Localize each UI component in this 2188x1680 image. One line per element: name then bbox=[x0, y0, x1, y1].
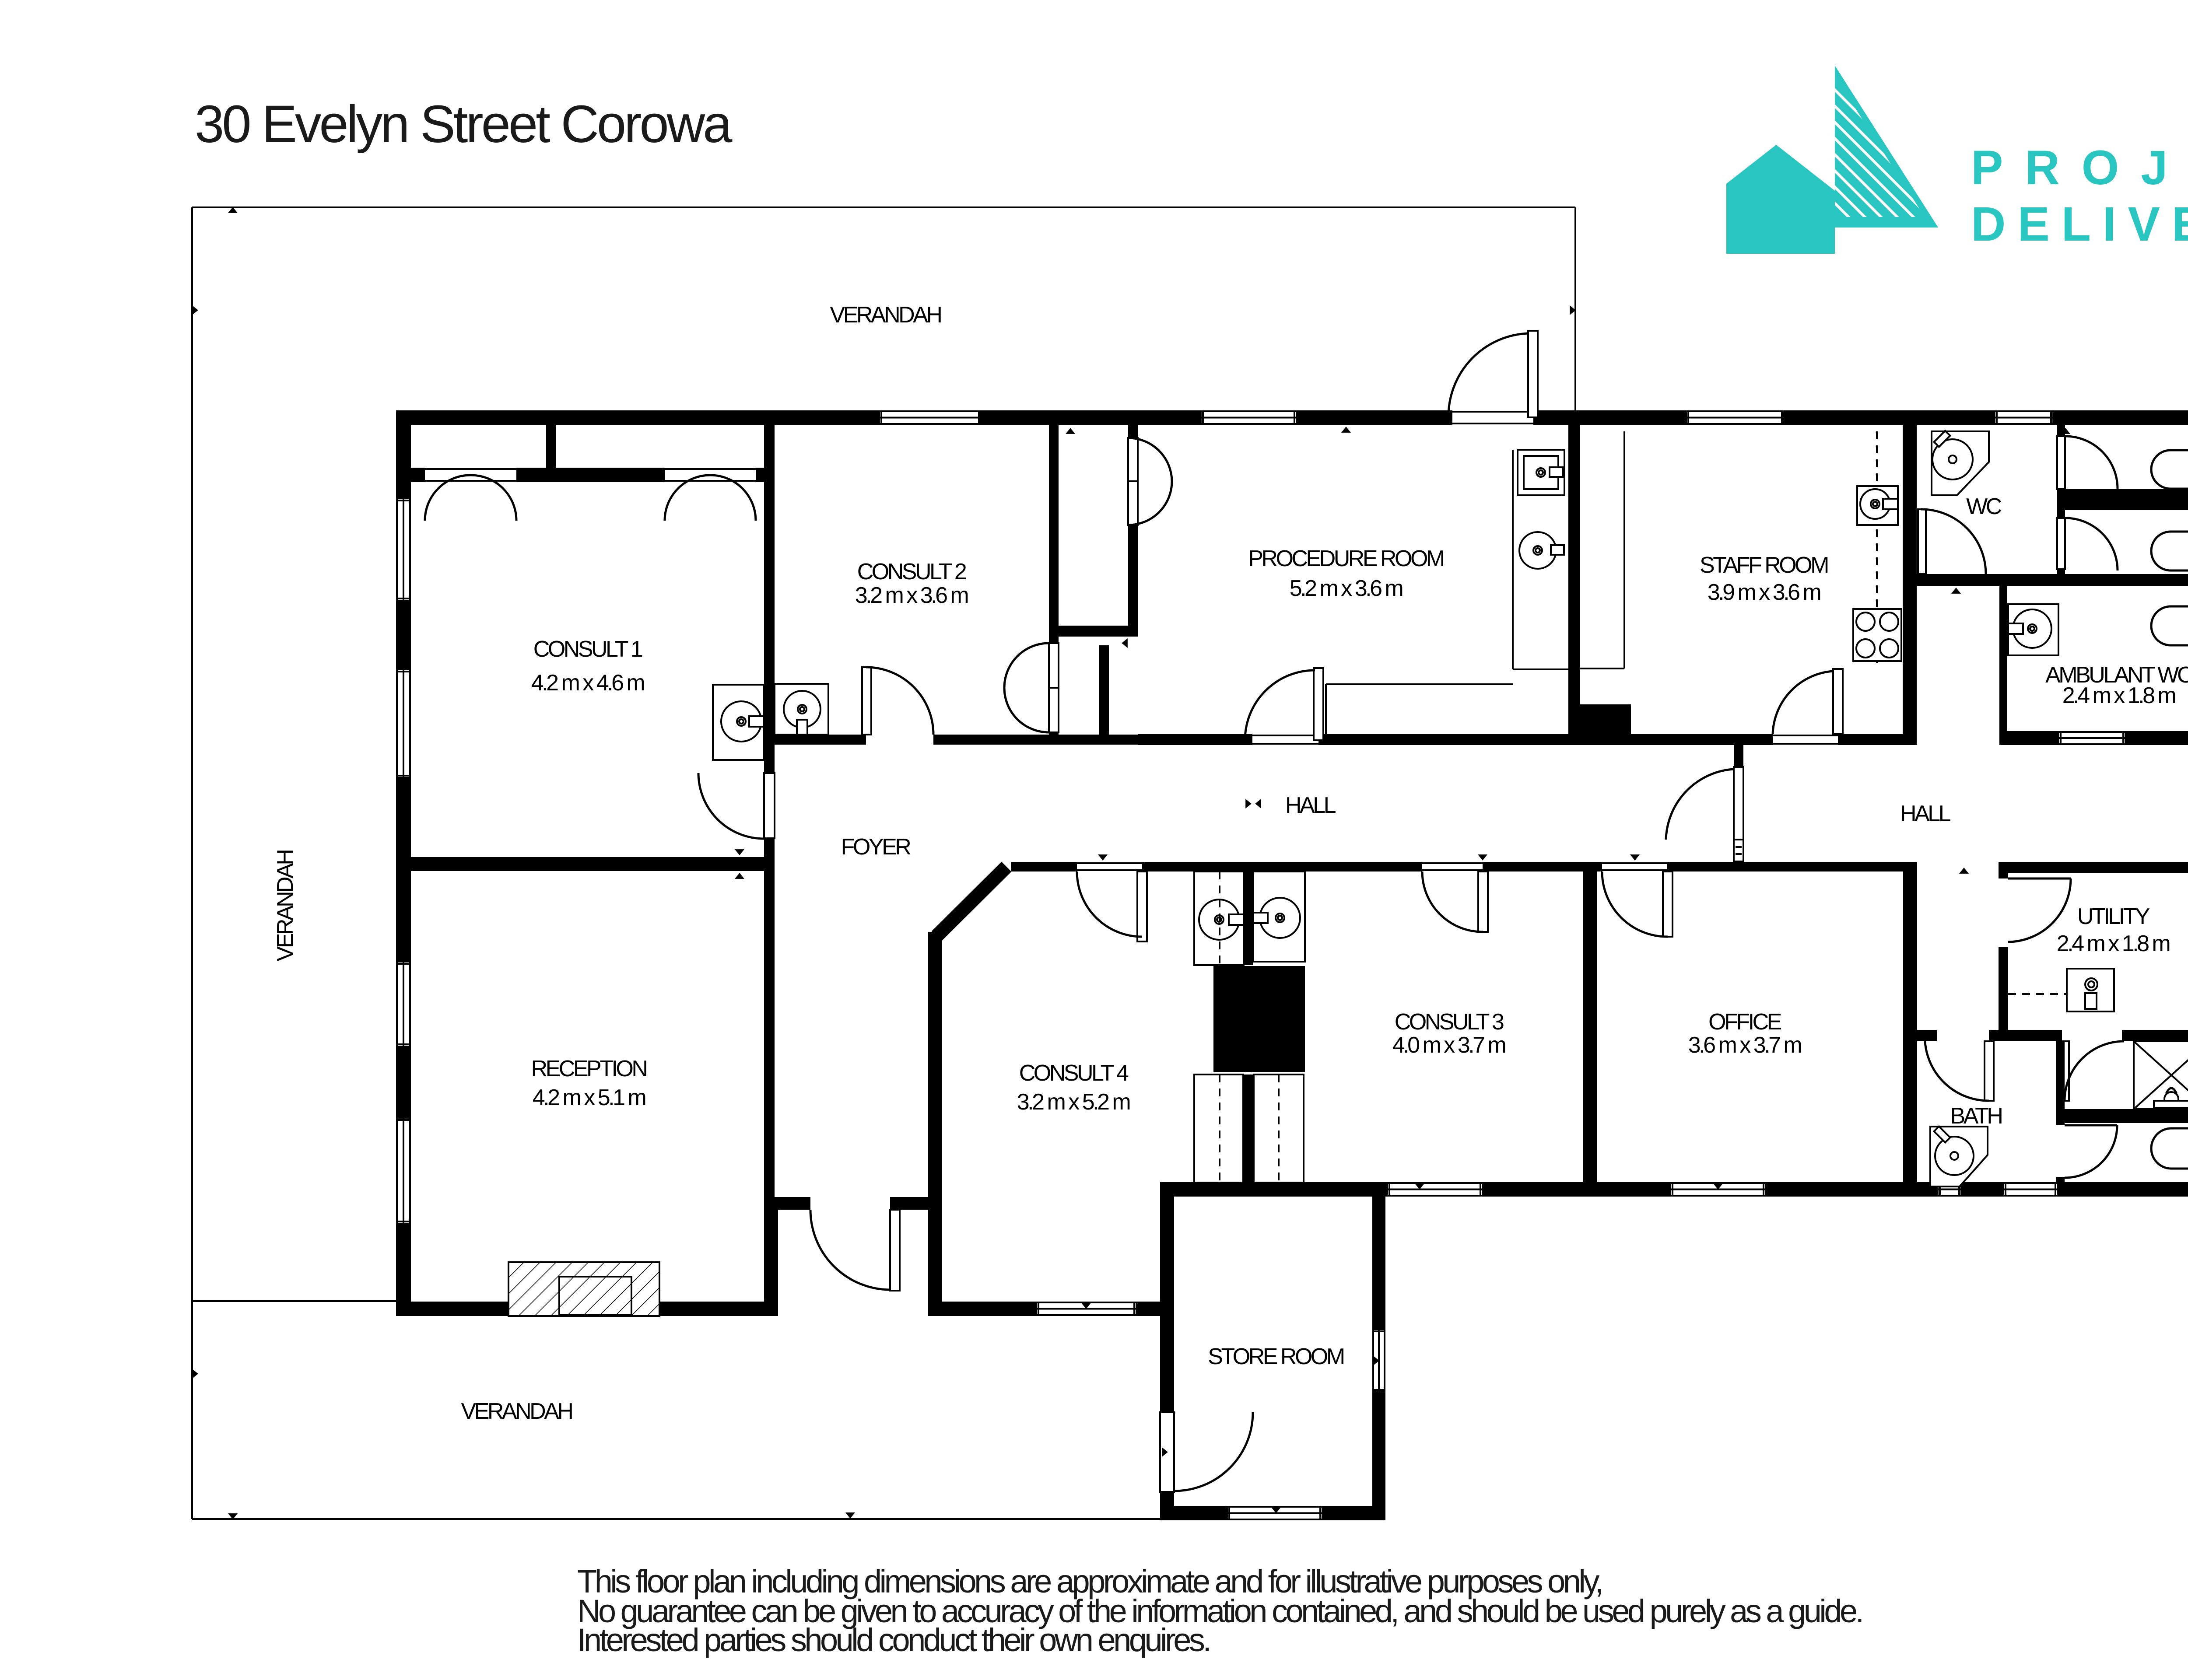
svg-text:PROCEDURE ROOM: PROCEDURE ROOM bbox=[1248, 546, 1444, 571]
svg-text:DELIVERY.co: DELIVERY.co bbox=[1971, 197, 2188, 251]
svg-text:CONSULT 4: CONSULT 4 bbox=[1019, 1060, 1129, 1086]
svg-text:PROJECT: PROJECT bbox=[1971, 141, 2188, 195]
svg-text:3.2 m x 3.6 m: 3.2 m x 3.6 m bbox=[855, 583, 968, 608]
svg-text:FOYER: FOYER bbox=[841, 834, 911, 860]
svg-text:2.4 m x 1.8 m: 2.4 m x 1.8 m bbox=[2057, 931, 2170, 956]
svg-text:CONSULT 3: CONSULT 3 bbox=[1395, 1009, 1504, 1035]
svg-text:VERANDAH: VERANDAH bbox=[830, 302, 941, 328]
svg-text:3.2 m x 5.2 m: 3.2 m x 5.2 m bbox=[1017, 1089, 1130, 1115]
svg-text:CONSULT 1: CONSULT 1 bbox=[533, 637, 642, 662]
svg-text:OFFICE: OFFICE bbox=[1708, 1009, 1781, 1035]
svg-text:RECEPTION: RECEPTION bbox=[531, 1056, 647, 1081]
svg-text:BATH: BATH bbox=[1950, 1103, 2002, 1129]
svg-text:2.4 m x 1.8 m: 2.4 m x 1.8 m bbox=[2062, 683, 2175, 708]
svg-text:UTILITY: UTILITY bbox=[2077, 904, 2150, 929]
svg-text:3.6 m x 3.7 m: 3.6 m x 3.7 m bbox=[1688, 1032, 1801, 1058]
svg-text:3.9 m x 3.6 m: 3.9 m x 3.6 m bbox=[1708, 580, 1820, 605]
svg-text:HALL: HALL bbox=[1285, 793, 1336, 818]
svg-text:5.2 m x 3.6 m: 5.2 m x 3.6 m bbox=[1290, 576, 1403, 601]
svg-text:4.0 m x 3.7 m: 4.0 m x 3.7 m bbox=[1392, 1032, 1505, 1058]
svg-text:Interested parties should cond: Interested parties should conduct their … bbox=[577, 1622, 1209, 1658]
svg-text:4.2 m x 4.6 m: 4.2 m x 4.6 m bbox=[531, 670, 644, 696]
svg-text:WC: WC bbox=[1966, 494, 2002, 519]
svg-text:VERANDAH: VERANDAH bbox=[461, 1399, 572, 1424]
svg-text:HALL: HALL bbox=[1900, 801, 1951, 826]
svg-text:4.2 m x 5.1 m: 4.2 m x 5.1 m bbox=[533, 1085, 645, 1110]
svg-text:VERANDAH: VERANDAH bbox=[273, 850, 298, 962]
svg-text:30 Evelyn Street Corowa: 30 Evelyn Street Corowa bbox=[195, 94, 733, 154]
svg-text:STAFF ROOM: STAFF ROOM bbox=[1700, 553, 1828, 578]
svg-text:STORE ROOM: STORE ROOM bbox=[1208, 1344, 1344, 1369]
svg-text:CONSULT 2: CONSULT 2 bbox=[857, 559, 966, 584]
